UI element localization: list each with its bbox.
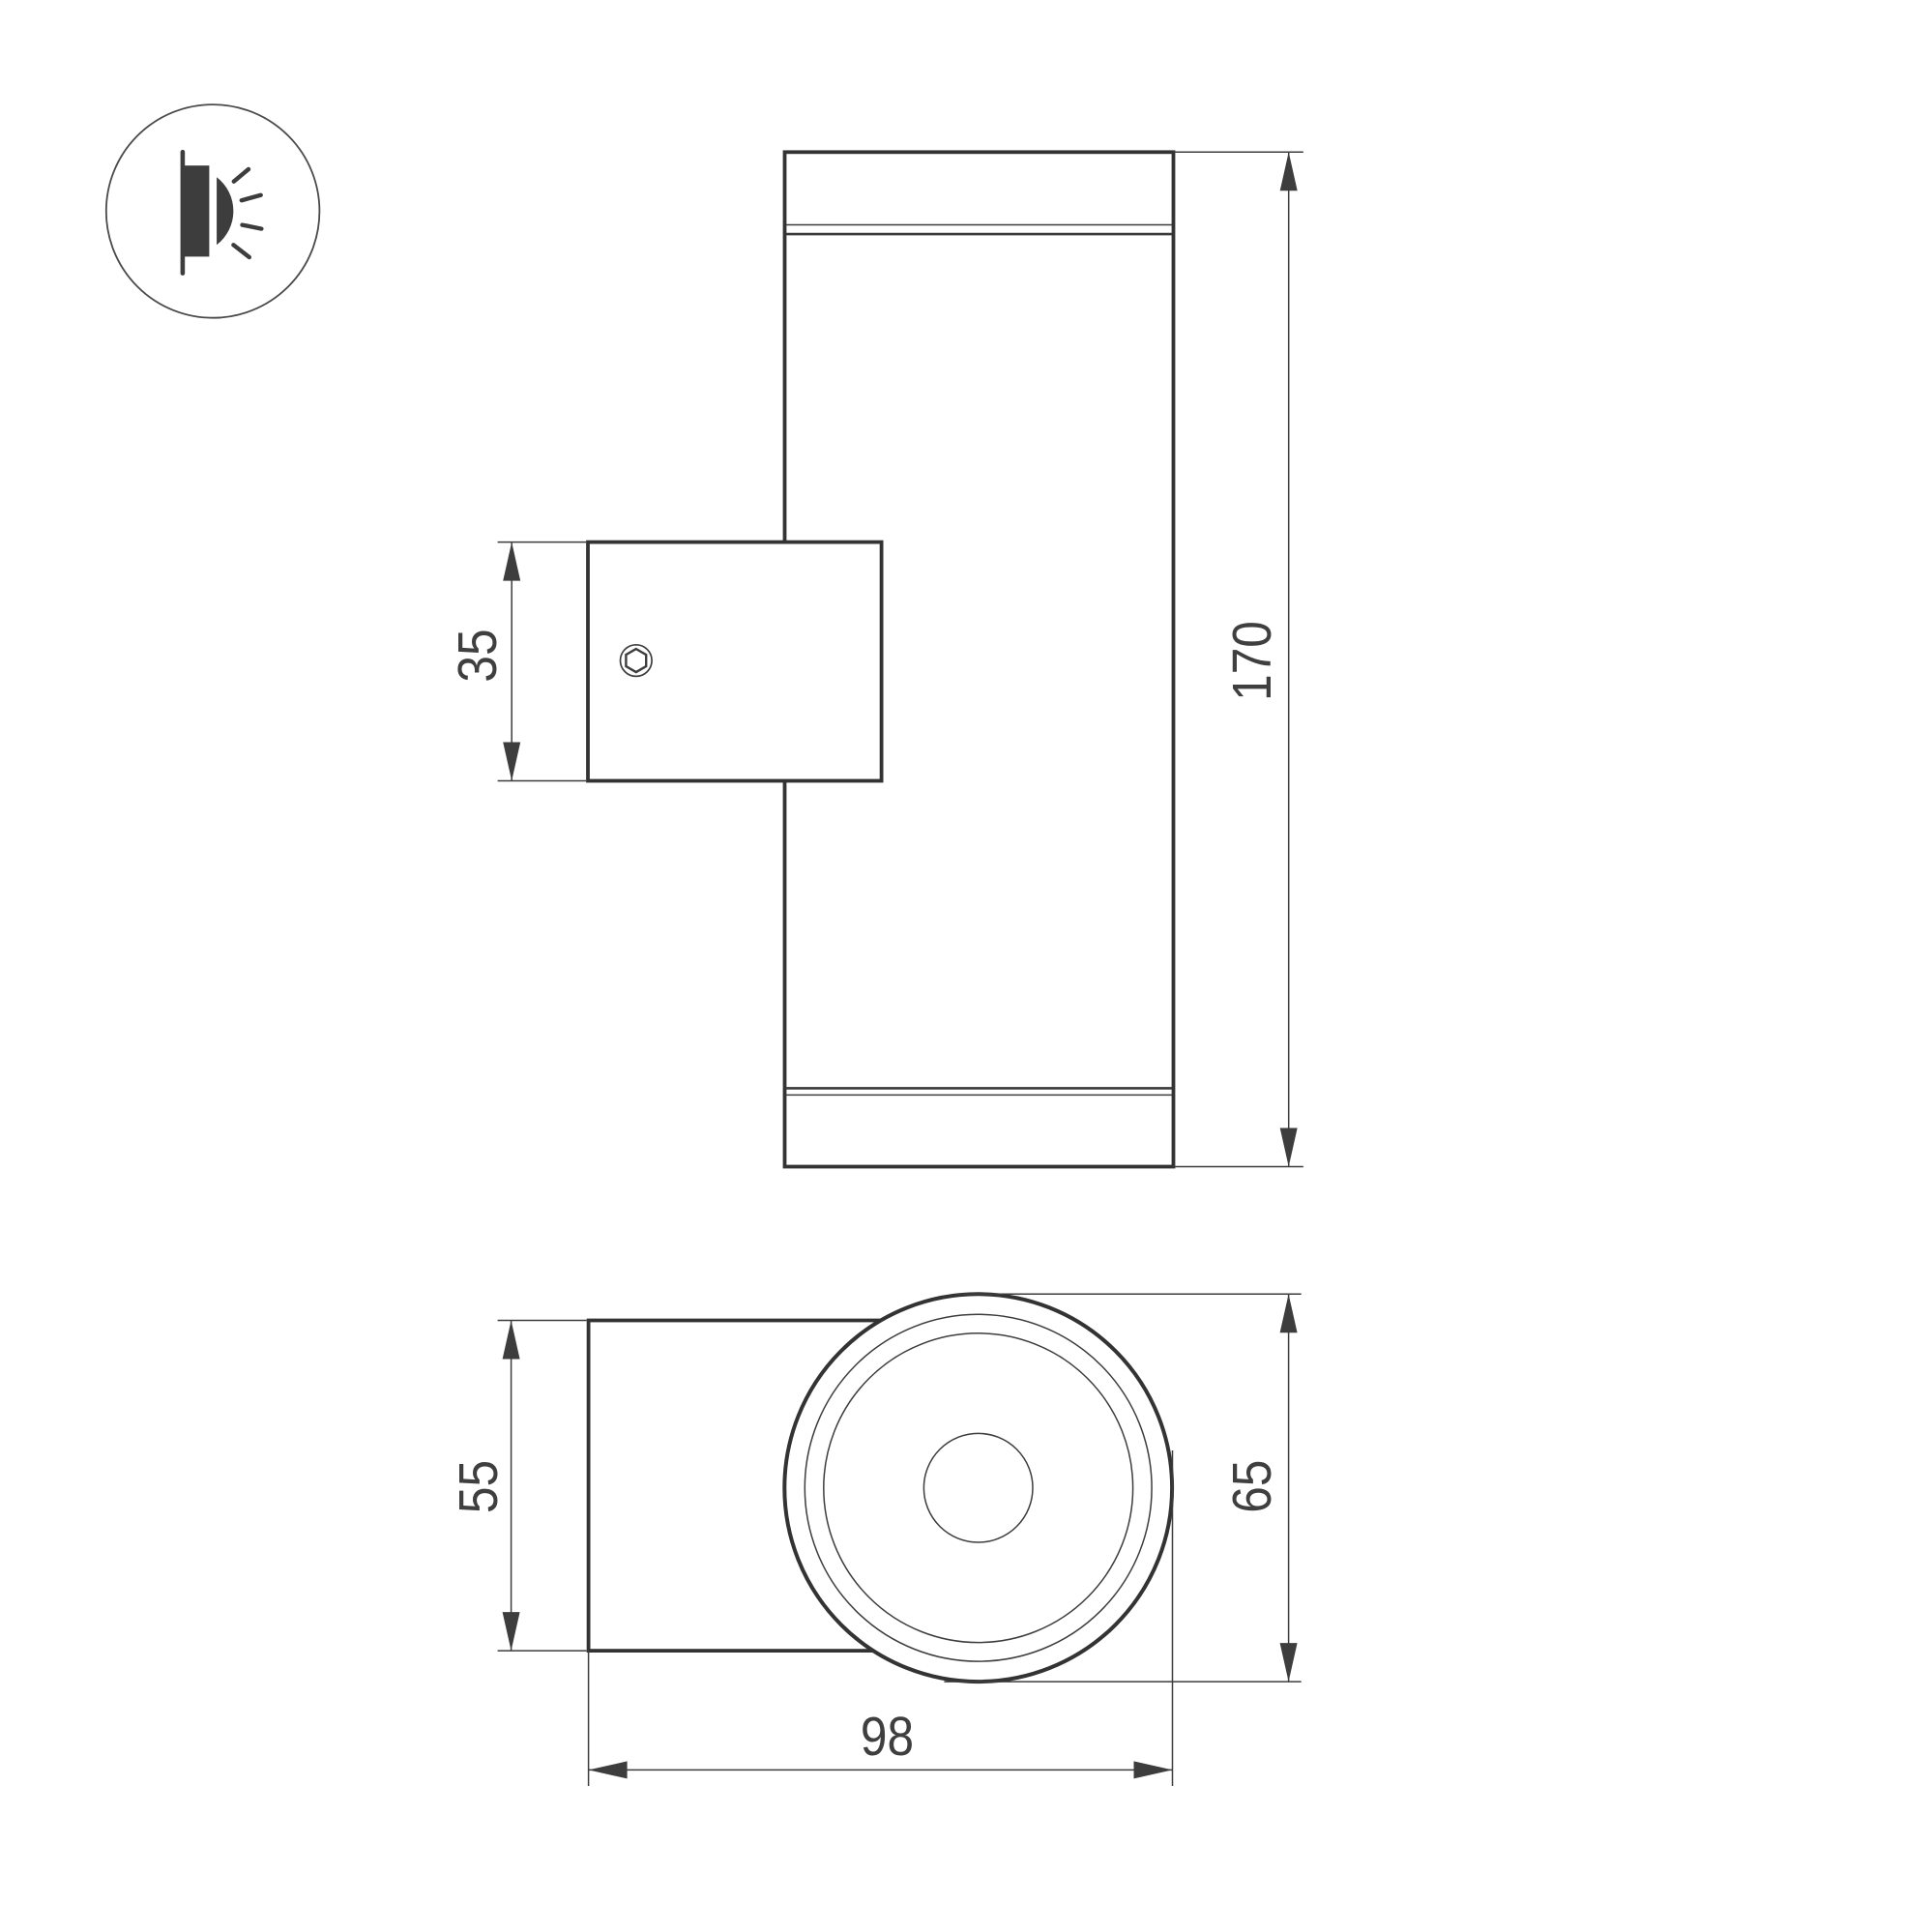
svg-text:35: 35 [448, 629, 509, 682]
svg-text:55: 55 [449, 1460, 510, 1513]
svg-text:170: 170 [1222, 621, 1283, 701]
svg-text:98: 98 [861, 1707, 914, 1768]
svg-text:65: 65 [1222, 1460, 1283, 1513]
